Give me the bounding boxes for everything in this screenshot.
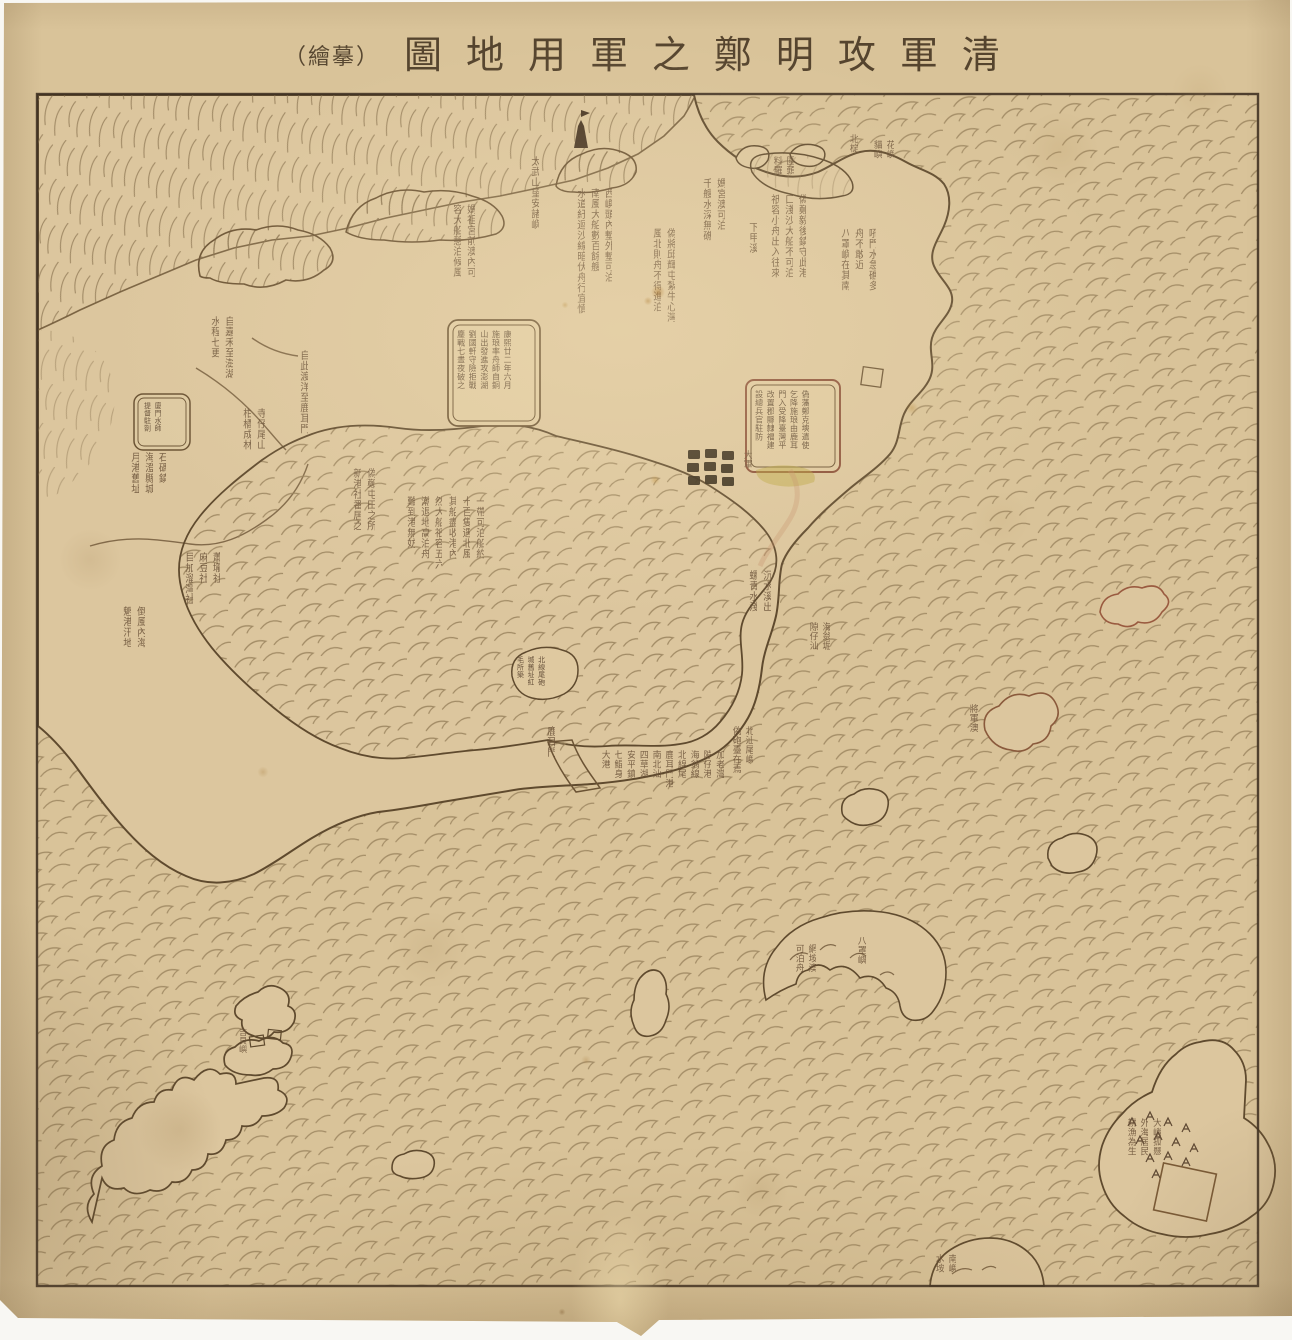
army-unit-symbols [687,449,734,486]
title-char: 圖 [404,24,442,79]
title-char: 用 [528,24,566,79]
title-char: 之 [652,24,690,79]
map-drawing [0,0,1292,1340]
islet-beixianwei [512,647,578,699]
cartouche-seal [134,394,190,450]
map-scan: （繪摹）圖地用軍之鄭明攻軍清 媽宮澳可泊千艘水深無礁下甲溪偽將邱輝屯紮牛心灣風北… [0,0,1292,1340]
cartouche-shilang [448,320,540,426]
title-char: 鄭 [714,24,752,79]
title-char: 清 [962,24,1000,79]
title-char: 軍 [590,24,628,79]
title-char: 攻 [838,24,876,79]
title-char: 軍 [900,24,938,79]
title-char: 地 [466,24,504,79]
title-char: （繪摹） [284,31,380,71]
title-char: 明 [776,24,814,79]
map-title: （繪摹）圖地用軍之鄭明攻軍清 [284,20,1000,82]
